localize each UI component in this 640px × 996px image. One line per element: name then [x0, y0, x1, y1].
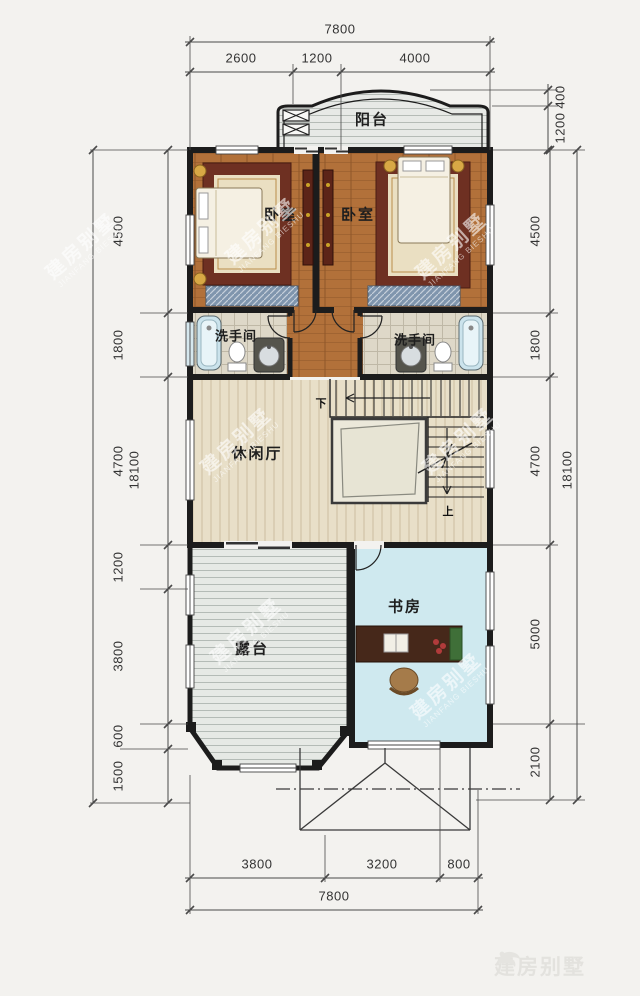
chair	[390, 668, 418, 694]
lamp-icon	[452, 160, 464, 172]
dim-top-seg: 4000	[400, 51, 431, 66]
window-hall-left	[186, 420, 194, 500]
window-terrace-left-1	[186, 575, 194, 615]
dim-left-seg: 3800	[111, 641, 126, 672]
toilet-left	[228, 342, 246, 371]
window-study-right-2	[486, 646, 494, 704]
dim-right-seg: 2100	[528, 747, 543, 778]
window-study-right-1	[486, 572, 494, 630]
room-label-bedroom-left: 卧室	[264, 204, 298, 225]
dim-left-seg: 1500	[111, 761, 126, 792]
dim-top-seg: 1200	[302, 51, 333, 66]
window-stairs-right	[486, 430, 494, 488]
lamp-icon	[194, 165, 206, 177]
dim-left-seg: 1200	[111, 552, 126, 583]
dim-top-total: 7800	[325, 22, 356, 37]
window-terrace-left-2	[186, 645, 194, 688]
door-terrace-sliding	[224, 541, 292, 549]
window-study-bottom	[368, 741, 440, 749]
door-balcony-right-sliding	[324, 146, 348, 154]
bathtub-right	[459, 316, 483, 370]
dim-right-seg: 5000	[528, 619, 543, 650]
dim-left-seg: 4700	[111, 446, 126, 477]
brand-logo: 建房别墅	[494, 944, 634, 988]
room-label-study: 书房	[388, 596, 422, 617]
dim-bottom-total: 7800	[319, 889, 350, 904]
floor-plan-page: 7800 2600 1200 4000 400 1200 4500 1800 4…	[0, 0, 640, 996]
dim-left-seg: 4500	[111, 216, 126, 247]
wardrobe-right	[368, 286, 460, 306]
bed-right	[398, 157, 450, 243]
bird-logo-icon	[494, 944, 524, 972]
window-bedroom-left	[186, 215, 194, 265]
dim-upper-right-seg: 1200	[553, 113, 568, 144]
window-terrace-bottom	[240, 764, 296, 772]
stairs-up-label: 上	[443, 503, 454, 519]
room-label-balcony: 阳台	[355, 109, 389, 130]
lamp-icon	[384, 160, 396, 172]
lamp-icon	[194, 273, 206, 285]
room-label-hall: 休闲厅	[231, 443, 282, 464]
dim-left-total: 18100	[127, 451, 142, 490]
toilet-right	[434, 342, 452, 371]
wardrobe-left	[206, 286, 298, 306]
dim-bottom-seg: 3200	[367, 857, 398, 872]
dim-right-seg: 4700	[528, 446, 543, 477]
dim-top-seg: 2600	[226, 51, 257, 66]
window-bathroom-left	[186, 322, 194, 366]
dim-upper-right-seg: 400	[553, 85, 568, 108]
door-balcony-left-sliding	[294, 146, 318, 154]
window-bedroom-right-top	[404, 146, 452, 154]
dim-right-seg: 1800	[528, 330, 543, 361]
room-label-bathroom-left: 洗手间	[215, 326, 257, 345]
floor-plan-drawing	[0, 0, 640, 996]
window-bedroom-left-top	[216, 146, 258, 154]
dim-left-seg: 600	[111, 724, 126, 747]
window-bedroom-right	[486, 205, 494, 265]
room-label-bedroom-right: 卧室	[341, 204, 375, 225]
dim-bottom-seg: 800	[447, 857, 470, 872]
dim-right-seg: 4500	[528, 216, 543, 247]
room-label-terrace: 露台	[235, 638, 269, 659]
stairs-down-label: 下	[316, 395, 327, 411]
sink-left	[254, 338, 284, 372]
dim-right-total: 18100	[560, 451, 575, 490]
room-label-bathroom-right: 洗手间	[394, 330, 436, 349]
bed-left	[196, 188, 262, 258]
desk	[356, 626, 462, 662]
dim-bottom-seg: 3800	[242, 857, 273, 872]
dim-left-seg: 1800	[111, 330, 126, 361]
